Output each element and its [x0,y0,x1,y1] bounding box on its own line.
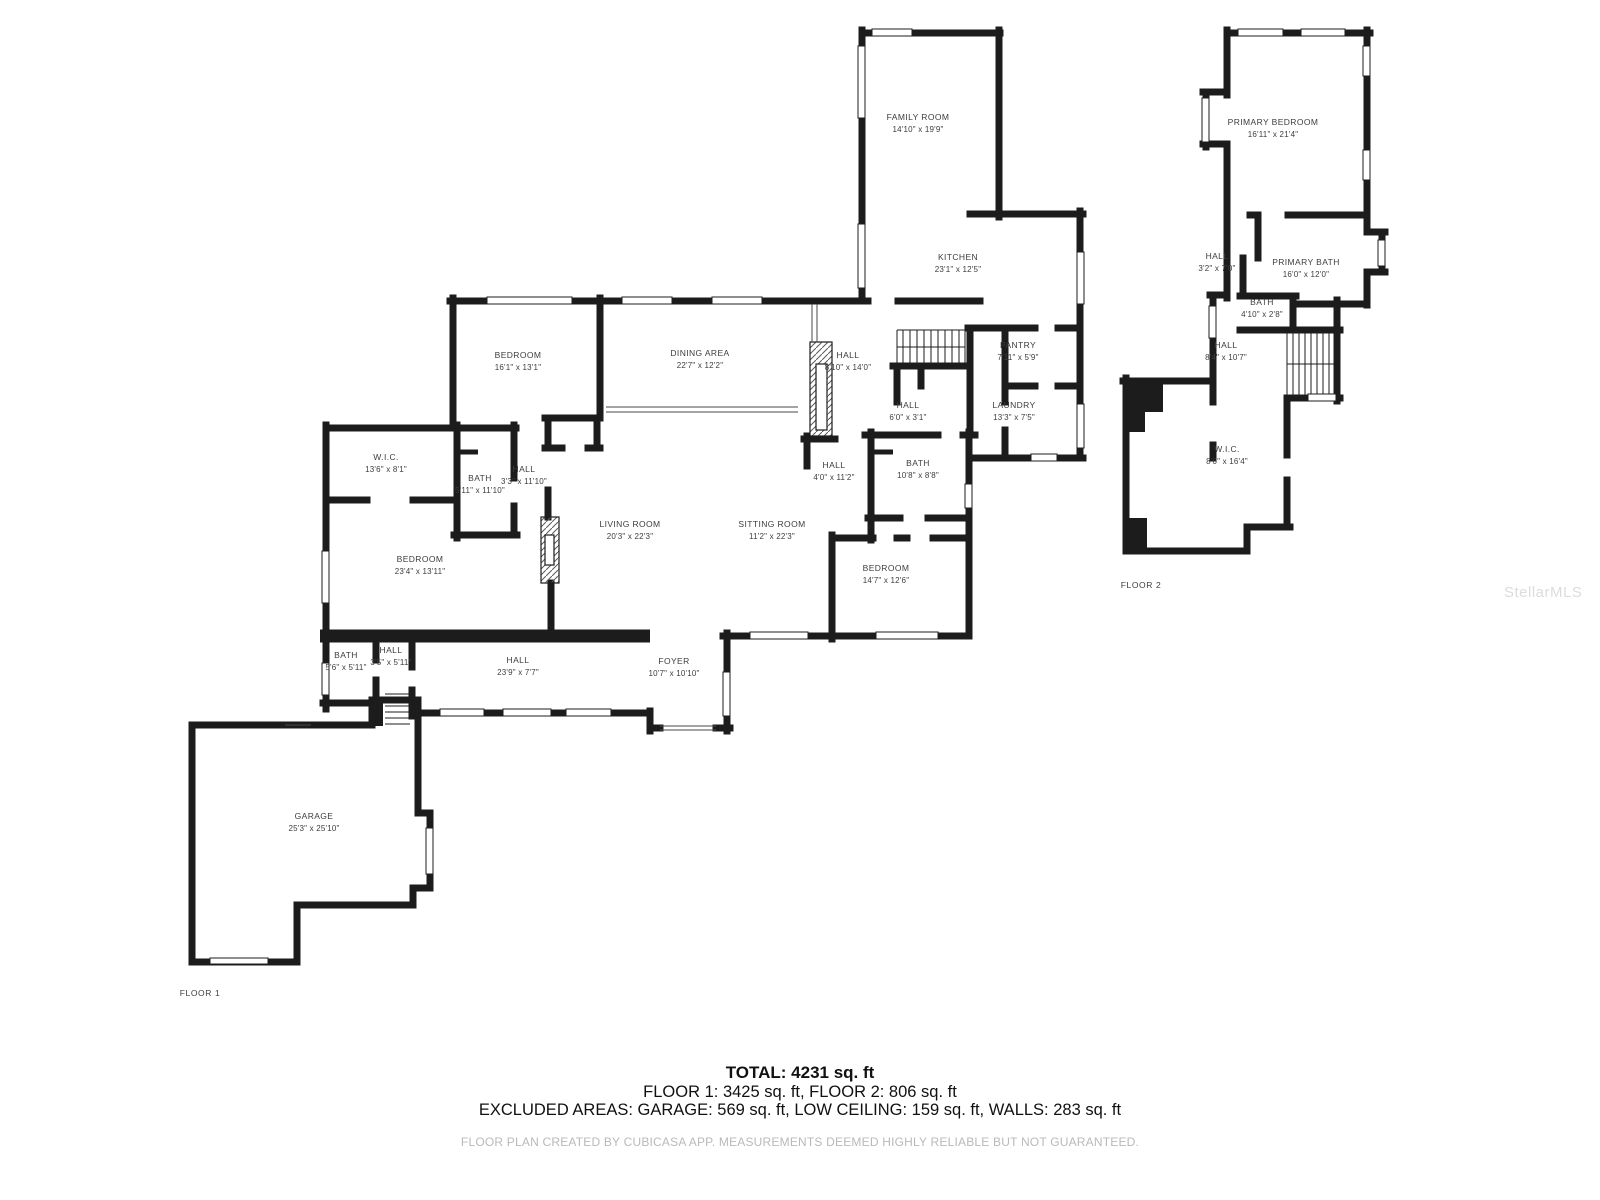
area-summary: TOTAL: 4231 sq. ft FLOOR 1: 3425 sq. ft,… [0,1064,1600,1149]
floor2-walls [1123,30,1385,551]
fireplace-icon [541,342,832,583]
garage-walls [192,700,430,962]
floor-plan-drawing [0,0,1600,1200]
floor-plan-page: FAMILY ROOM 14'10" x 19'9" KITCHEN 23'1"… [0,0,1600,1200]
floor2-caption: FLOOR 2 [1121,580,1162,590]
total-area-text: TOTAL: 4231 sq. ft [0,1064,1600,1082]
stellar-mls-watermark: StellarMLS [1504,584,1582,601]
disclaimer-text: FLOOR PLAN CREATED BY CUBICASA APP. MEAS… [0,1135,1600,1149]
floor-areas-text: FLOOR 1: 3425 sq. ft, FLOOR 2: 806 sq. f… [0,1084,1600,1101]
floor1-caption: FLOOR 1 [180,988,221,998]
staircase-floor1 [897,330,965,366]
staircase-floor2 [1287,330,1337,398]
excluded-areas-text: EXCLUDED AREAS: GARAGE: 569 sq. ft, LOW … [0,1102,1600,1119]
floor1-walls [323,30,1083,731]
